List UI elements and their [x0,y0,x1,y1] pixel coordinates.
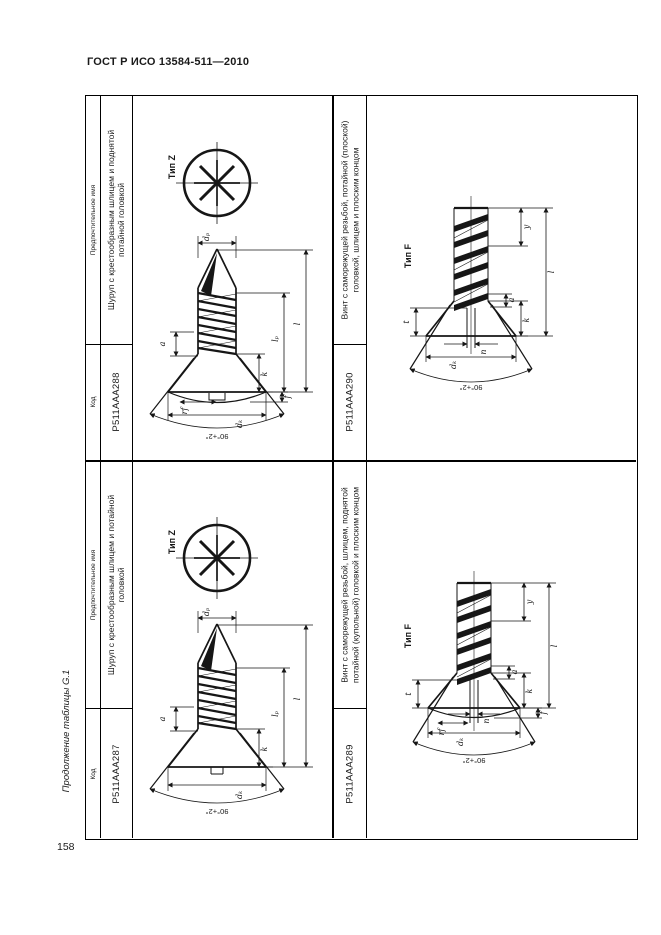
dim-label-t: t [402,320,411,324]
dim-label-n: n [479,349,488,354]
document-page: ГОСТ Р ИСО 13584-511—2010 Продолжение та… [0,0,661,935]
dim-label-dk: dₖ [449,361,458,369]
dim-label-dp: dₚ [202,232,211,241]
technical-drawing-290: Тип F 90°+2° y l [366,96,639,461]
type-label: Тип Z [167,529,177,554]
angle-label: 90°+2° [460,383,483,392]
dim-label-rf: rf [437,727,446,736]
dim-label-a: a [158,716,167,721]
dim-label-k: k [260,371,269,376]
dim-label-dk: dₖ [235,420,244,428]
dim-label-n: n [482,718,491,723]
column-header-code: Код [86,344,100,460]
angle-label: 90°+2° [206,432,229,441]
dim-label-f: f [539,709,548,715]
technical-drawing-289: Тип F 90°+2° y l [366,461,639,841]
dim-label-t: t [404,692,413,696]
dim-label-a: a [507,297,516,302]
dim-label-dk: dₖ [456,738,465,746]
parts-table: Предпочтительное имя Шуруп с крестообраз… [85,95,638,840]
type-label: Тип F [403,243,413,268]
preferred-name-cell: Шуруп с крестообразным шлицем и потайной… [100,461,132,708]
side-caption-container: Продолжение таблицы G.1 [56,626,76,836]
document-title: ГОСТ Р ИСО 13584-511—2010 [87,56,249,68]
dim-label-dk: dₖ [235,791,244,799]
dim-label-l: l [547,270,556,273]
dim-label-k: k [525,688,534,693]
technical-drawing-287: Тип Z dₚ 90°+2° a [132,461,332,841]
page-number: 158 [57,841,75,853]
column-header-name: Предпочтительное имя [86,96,100,344]
dim-label-y: y [525,599,534,605]
column-header-name: Предпочтительное имя [86,461,100,708]
code-cell: P511AAA290 [333,344,366,460]
preferred-name-cell: Винт с саморежущей резьбой, потайной (пл… [333,96,366,344]
preferred-name-cell: Винт с саморежущей резьбой, шлицем, подн… [333,461,366,708]
dim-label-l: l [293,322,302,325]
dim-label-l: l [293,697,302,700]
dim-label-rf: rf [180,406,189,415]
technical-drawing-288: Тип Z dₚ 90°+2° [132,96,332,461]
dim-label-lp: lₚ [271,335,280,342]
type-label: Тип Z [167,154,177,179]
preferred-name-cell: Шуруп с крестообразным шлицем и поднятой… [100,96,132,344]
dim-label-lp: lₚ [271,710,280,717]
code-cell: P511AAA289 [333,708,366,839]
dim-label-y: y [522,224,531,230]
angle-label: 90°+2° [206,807,229,816]
dim-label-k: k [260,746,269,751]
code-cell: P511AAA288 [100,344,132,460]
code-cell: P511AAA287 [100,708,132,839]
dim-label-a: a [158,341,167,346]
dim-label-f: f [283,393,292,399]
dim-label-dp: dₚ [202,607,211,616]
dim-label-k: k [522,317,531,322]
column-header-code: Код [86,708,100,839]
dim-label-a: a [510,669,519,674]
dim-label-l: l [550,644,559,647]
table-continuation-caption: Продолжение таблицы G.1 [61,670,72,793]
type-label: Тип F [403,623,413,648]
angle-label: 90°+2° [463,756,486,765]
